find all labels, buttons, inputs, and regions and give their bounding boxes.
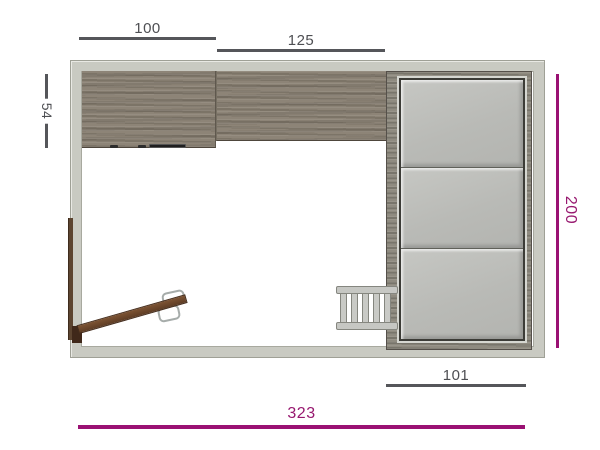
wall-cabinet-left xyxy=(82,71,216,148)
wardrobe-door-top xyxy=(401,80,523,167)
dim-label-cabinet-depth: 54 xyxy=(39,99,55,124)
dim-line-cabinet-left-width xyxy=(79,37,216,40)
ladder-rung xyxy=(362,293,369,323)
dim-label-cabinet-right-width: 125 xyxy=(217,32,385,49)
ladder-rung xyxy=(351,293,358,323)
ladder-rail-bottom xyxy=(336,322,398,330)
wall-cabinet-right xyxy=(216,71,386,141)
wardrobe-door-bottom xyxy=(401,248,523,339)
cabinet-knob-icon xyxy=(110,145,118,148)
dim-line-room-width xyxy=(78,425,525,429)
ladder-rung xyxy=(384,293,391,323)
dim-label-room-depth: 200 xyxy=(561,196,579,224)
dim-label-cabinet-left-width: 100 xyxy=(79,20,216,37)
ladder-rung xyxy=(373,293,380,323)
door-jamb xyxy=(68,218,73,340)
cabinet-handle-icon xyxy=(149,144,186,148)
ladder-rung xyxy=(340,293,347,323)
wardrobe-doors xyxy=(399,78,525,341)
dim-line-cabinet-right-width xyxy=(217,49,385,52)
dim-label-wardrobe-width: 101 xyxy=(386,367,526,384)
cabinet-knob-icon xyxy=(138,145,146,148)
floor-plan: 100 125 54 200 101 323 xyxy=(0,0,600,450)
dim-line-room-depth xyxy=(556,74,559,348)
wardrobe-door-middle xyxy=(401,167,523,248)
dim-line-wardrobe-width xyxy=(386,384,526,387)
dim-label-room-width: 323 xyxy=(78,405,525,423)
